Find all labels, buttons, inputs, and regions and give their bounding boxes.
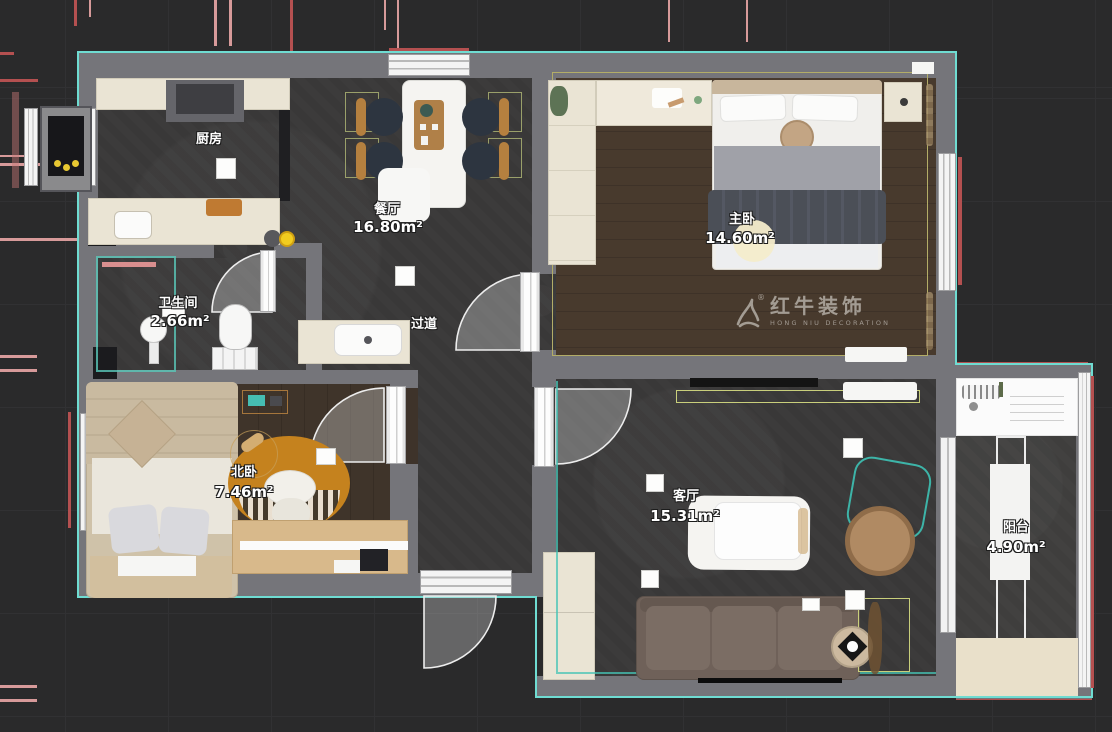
bed-blanket	[714, 146, 880, 194]
annotation-band	[12, 92, 19, 188]
toilet-tank	[212, 347, 258, 370]
balcony-sliding-door	[940, 437, 956, 633]
sofa-cushion	[646, 606, 710, 670]
watermark-brand: 红牛装饰	[770, 296, 890, 316]
room-label-hallway: 过道	[411, 313, 437, 332]
dining-chair	[365, 98, 403, 136]
annotation-tick	[0, 52, 14, 55]
room-label-master: 主卧	[729, 208, 755, 227]
bed-headboard	[712, 80, 882, 94]
basin-stem	[149, 342, 159, 364]
watermark: ® 红牛装饰 HONG NIU DECORATION	[735, 296, 890, 328]
shelf-plant	[550, 86, 568, 116]
annotation-tick	[384, 0, 386, 30]
radiator	[845, 347, 907, 362]
radiator	[843, 382, 917, 400]
window-marker	[389, 48, 469, 51]
bed-pillow	[720, 94, 787, 122]
outlet-symbol	[646, 474, 664, 492]
watermark-subtitle: HONG NIU DECORATION	[770, 319, 890, 327]
table-plant	[420, 104, 433, 117]
console-decor	[248, 395, 265, 406]
rattan-back	[356, 142, 366, 180]
window-marker	[68, 412, 71, 528]
room-area-north: 7.46m²	[214, 483, 273, 501]
living-door-leaf	[534, 387, 554, 467]
room-area-balcony: 4.90m²	[986, 538, 1045, 556]
washer-knob	[969, 402, 978, 411]
desk-dot	[694, 96, 702, 104]
annotation-tick	[214, 0, 217, 46]
door-stop	[316, 448, 336, 465]
master-door-leaf	[520, 272, 540, 352]
room-label-bath: 卫生间	[158, 292, 197, 311]
outlet-symbol	[641, 570, 659, 588]
balcony-window	[1078, 372, 1091, 688]
nightstand-lamp	[900, 98, 908, 106]
washer	[962, 385, 1000, 399]
toilet-bowl	[219, 304, 252, 350]
registered-mark: ®	[757, 293, 765, 302]
annotation-tick	[0, 699, 37, 702]
tray-item	[420, 124, 426, 130]
room-label-living: 客厅	[673, 485, 699, 504]
annotation-tick	[89, 0, 91, 17]
annotation-tick	[0, 355, 37, 358]
living-teal-edge	[556, 381, 558, 674]
balcony-plant	[999, 382, 1003, 397]
rattan-back	[356, 98, 366, 136]
room-label-kitchen: 厨房	[196, 128, 222, 147]
table-shadow	[798, 508, 808, 554]
curtain	[926, 84, 933, 146]
outlet-symbol	[395, 266, 415, 286]
outlet-symbol	[845, 590, 865, 610]
bed-runner	[118, 556, 196, 576]
room-area-living: 15.31m²	[650, 507, 720, 525]
north-pillow	[158, 506, 210, 556]
flame-dot	[63, 164, 70, 171]
room-label-dining: 餐厅	[374, 198, 400, 217]
room-area-master: 14.60m²	[705, 229, 775, 247]
rattan-back	[499, 142, 509, 180]
coffee-table	[714, 502, 802, 560]
annotation-tick	[0, 79, 38, 82]
desk-note	[334, 560, 360, 573]
room-area-bath: 2.66m²	[150, 312, 209, 330]
room-area-dining: 16.80m²	[353, 218, 423, 236]
drying-rack-grill	[1010, 396, 1064, 426]
bay-window	[24, 108, 38, 186]
floor-plant	[868, 602, 882, 674]
tray-item	[432, 124, 438, 130]
outlet-symbol	[843, 438, 863, 458]
vanity-drain	[364, 336, 372, 344]
annotation-tick	[0, 369, 37, 372]
window-marker	[1091, 376, 1094, 688]
room-label-north: 北卧	[231, 461, 257, 480]
towel-rail	[102, 262, 156, 267]
annotation-tick	[746, 0, 748, 42]
sofa-cushion	[712, 606, 776, 670]
side-table-bowl	[847, 641, 858, 652]
balcony-mat	[956, 638, 1078, 696]
annotation-tick	[668, 0, 670, 42]
outlet-symbol	[802, 598, 820, 611]
laptop	[360, 549, 388, 571]
annotation-tick	[290, 0, 293, 57]
north-pillow	[108, 504, 161, 555]
kitchen-sink	[114, 211, 152, 239]
corner-trim	[912, 62, 934, 74]
outlet-symbol	[216, 158, 236, 179]
tv-panel	[690, 378, 818, 387]
entry-door-frame	[420, 570, 512, 594]
dining-chair	[462, 142, 500, 180]
master-window	[938, 153, 956, 291]
swivel-chair	[845, 506, 915, 576]
shoe-cabinet	[543, 552, 595, 680]
curtain	[926, 292, 933, 350]
annotation-tick	[397, 0, 399, 48]
brand-logo: ®	[735, 296, 763, 328]
dining-chair	[462, 98, 500, 136]
window-marker	[958, 157, 962, 285]
room-label-balcony: 阳台	[1003, 516, 1029, 535]
flame-dot	[54, 160, 61, 167]
tray-item	[421, 136, 428, 145]
bed-pillow	[792, 94, 859, 122]
annotation-tick	[229, 0, 232, 46]
bathroom-door-leaf	[260, 250, 276, 312]
entry-door-arc	[424, 596, 496, 668]
console-decor	[270, 396, 282, 406]
cutting-board	[206, 199, 242, 216]
dining-window	[388, 54, 470, 76]
annotation-tick	[74, 0, 77, 26]
rattan-back	[499, 98, 509, 136]
north-door-leaf	[386, 386, 406, 464]
floorplan-render: 厨房 餐厅 16.80m² 主卧 14.60m² 卫生间 2.66m² 过道 北…	[0, 0, 1112, 732]
flame-dot	[72, 160, 79, 167]
light-point	[279, 231, 295, 247]
sofa-base-line	[698, 678, 842, 683]
stove-inner	[176, 84, 234, 114]
annotation-tick	[0, 685, 37, 688]
